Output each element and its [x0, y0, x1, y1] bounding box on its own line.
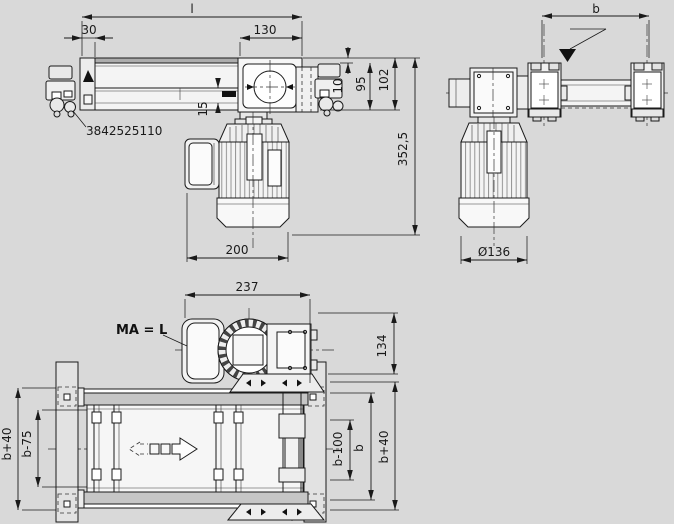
dim-15-label: 15 — [196, 101, 210, 116]
torque-label: MA = L — [116, 323, 167, 338]
dim-length-label: l — [190, 2, 193, 16]
drive-motor-end — [459, 117, 529, 246]
left-end-hardware — [46, 66, 76, 117]
connecting-shaft — [561, 80, 631, 108]
dim-b40-right-label: b+40 — [377, 431, 391, 464]
dim-130-label: 130 — [254, 23, 277, 37]
end-view — [446, 16, 668, 264]
left-bracket — [528, 63, 561, 121]
dim-b-top-label: b — [592, 2, 600, 16]
dim-10-label: 10 — [331, 78, 345, 93]
side-view — [46, 17, 420, 262]
dim-b75-label: b-75 — [20, 430, 34, 457]
plan-view — [18, 295, 399, 522]
dim-352-label: 352,5 — [396, 132, 410, 166]
dim-b100-label: b-100 — [331, 432, 345, 467]
dim-b40-left-label: b+40 — [0, 428, 14, 461]
gearbox — [449, 68, 528, 117]
dim-200-label: 200 — [226, 243, 249, 257]
dim-30-label: 30 — [81, 23, 96, 37]
dim-134-label: 134 — [375, 335, 389, 358]
technical-drawing: l 30 130 b 3842525110 15 10 95 102 352,5… — [0, 0, 674, 524]
drive-motor-front — [185, 112, 289, 248]
drive-head — [238, 58, 318, 114]
left-post — [56, 362, 78, 522]
drawing-svg: l 30 130 b 3842525110 15 10 95 102 352,5… — [0, 0, 674, 524]
marking-symbol — [559, 29, 606, 62]
dim-b-right-label: b — [352, 444, 366, 452]
belt-clamp — [222, 91, 236, 97]
part-number-label: 3842525110 — [86, 124, 162, 138]
dim-dia136-label: Ø136 — [478, 245, 510, 259]
dim-237-label: 237 — [236, 280, 259, 294]
dim-95-label: 95 — [354, 76, 368, 91]
right-bracket — [631, 63, 664, 121]
dim-102-label: 102 — [377, 69, 391, 92]
